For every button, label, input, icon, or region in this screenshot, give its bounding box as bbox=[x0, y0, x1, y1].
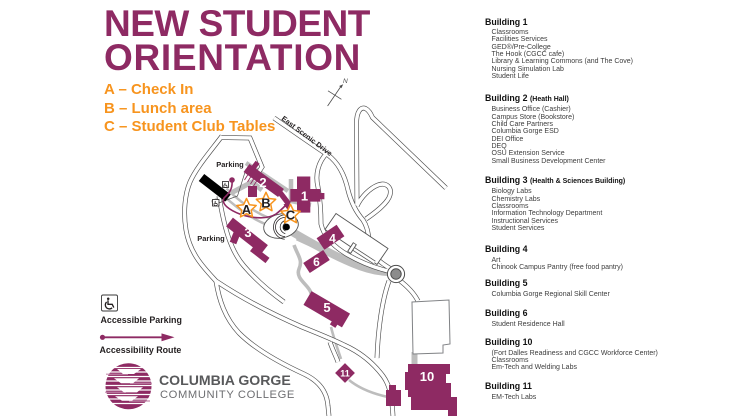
svg-text:3: 3 bbox=[244, 225, 251, 240]
svg-text:4: 4 bbox=[329, 232, 336, 246]
svg-text:5: 5 bbox=[323, 300, 330, 315]
svg-text:Parking: Parking bbox=[216, 160, 244, 169]
svg-text:B: B bbox=[261, 195, 270, 210]
svg-text:10: 10 bbox=[420, 369, 434, 384]
svg-text:6: 6 bbox=[313, 255, 320, 269]
svg-text:A: A bbox=[242, 202, 252, 217]
svg-text:1: 1 bbox=[301, 189, 308, 204]
svg-text:East Scenic Drive: East Scenic Drive bbox=[280, 114, 334, 158]
svg-text:N: N bbox=[343, 78, 348, 85]
svg-text:2: 2 bbox=[259, 175, 266, 190]
svg-text:11: 11 bbox=[340, 369, 350, 379]
svg-text:C: C bbox=[286, 208, 296, 223]
svg-text:Parking: Parking bbox=[197, 234, 225, 243]
